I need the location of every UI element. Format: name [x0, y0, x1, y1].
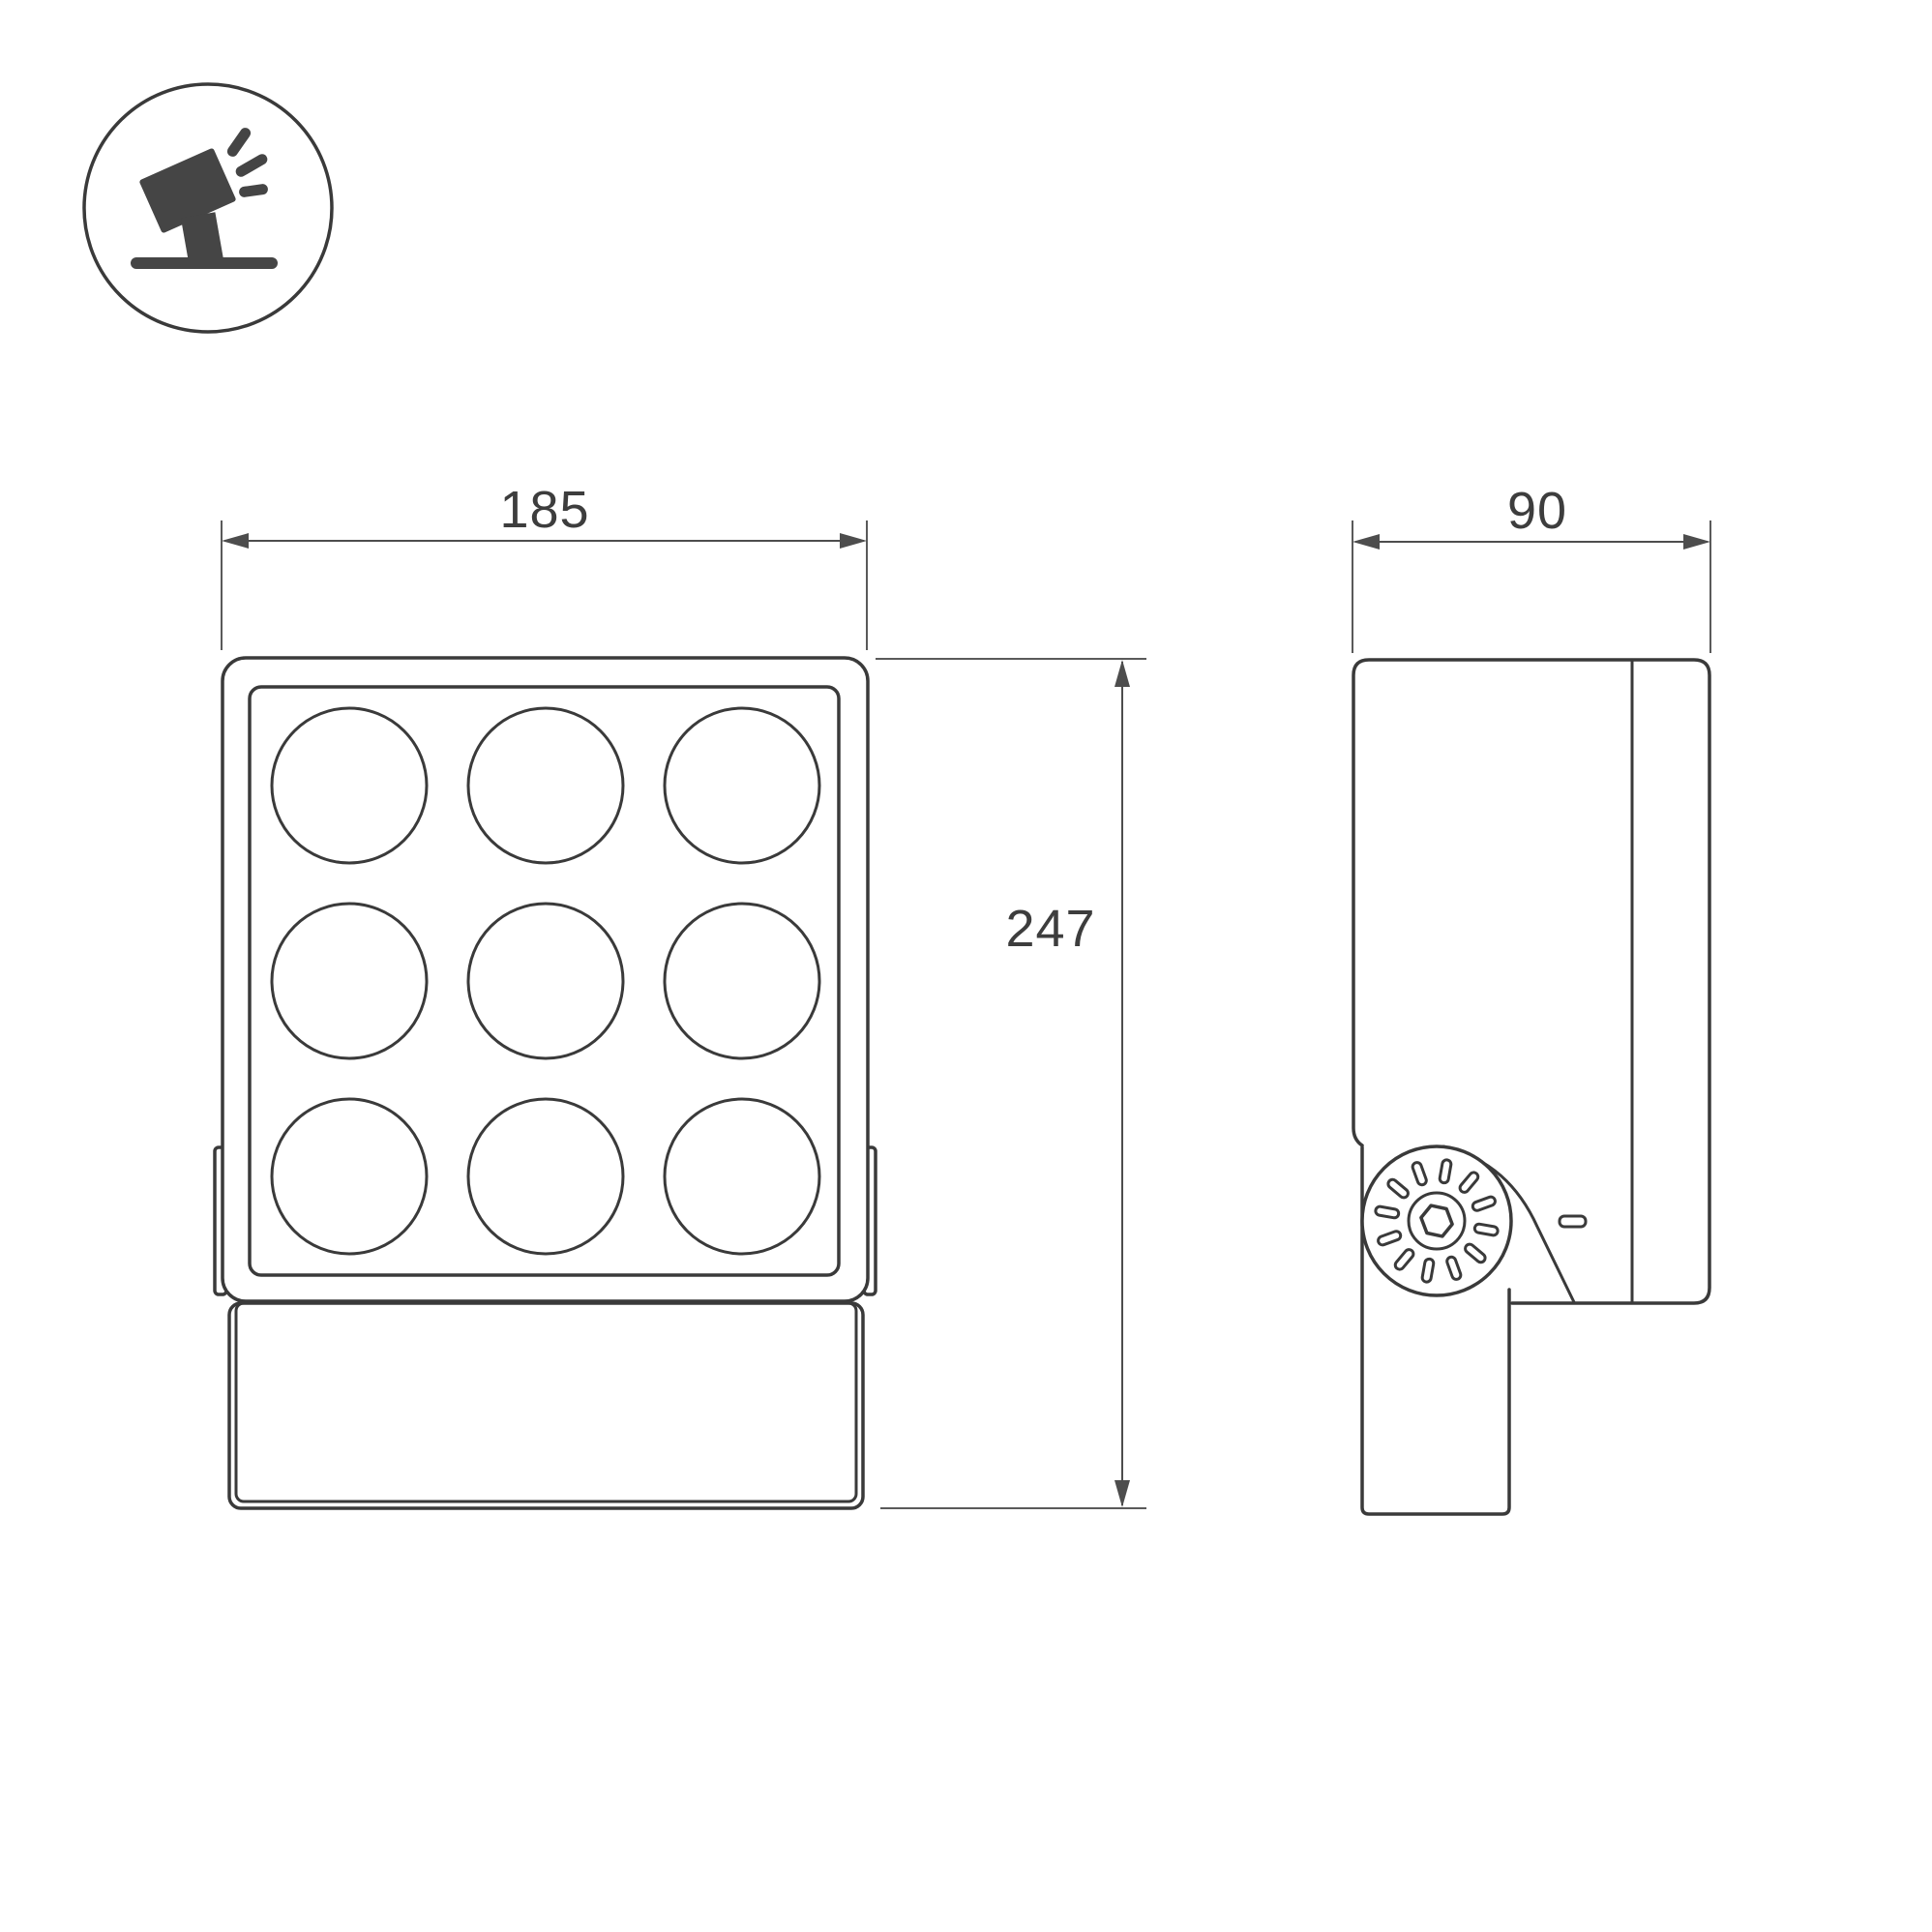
light-ray-icon: [225, 126, 253, 159]
side-view: [1353, 660, 1709, 1514]
floodlight-base-icon: [131, 257, 278, 269]
arrow-left-icon: [1352, 534, 1380, 550]
arrow-left-icon: [222, 533, 249, 549]
arrow-right-icon: [840, 533, 867, 549]
arrow-down-icon: [1115, 1480, 1130, 1507]
height-dimension-label: 247: [1005, 900, 1095, 958]
mount-base-outer: [229, 1303, 863, 1508]
drawing-canvas: 185 90 247: [0, 0, 1932, 1932]
dimension-height: 247: [876, 659, 1146, 1508]
light-ray-icon: [238, 183, 268, 197]
dimension-width: 185: [222, 481, 867, 650]
tilted-floodlight-icon: [131, 126, 278, 269]
arrow-right-icon: [1683, 534, 1710, 550]
pivot-disc: [1362, 1146, 1511, 1295]
front-housing: [223, 658, 868, 1301]
dimension-depth: 90: [1352, 482, 1710, 653]
arrow-up-icon: [1115, 660, 1130, 687]
floodlight-badge-icon: [84, 84, 332, 332]
front-view: [215, 658, 876, 1508]
depth-dimension-label: 90: [1507, 482, 1567, 540]
dimension-drawing: 185 90 247: [0, 0, 1932, 1932]
width-dimension-label: 185: [499, 481, 589, 539]
light-ray-icon: [234, 152, 270, 179]
